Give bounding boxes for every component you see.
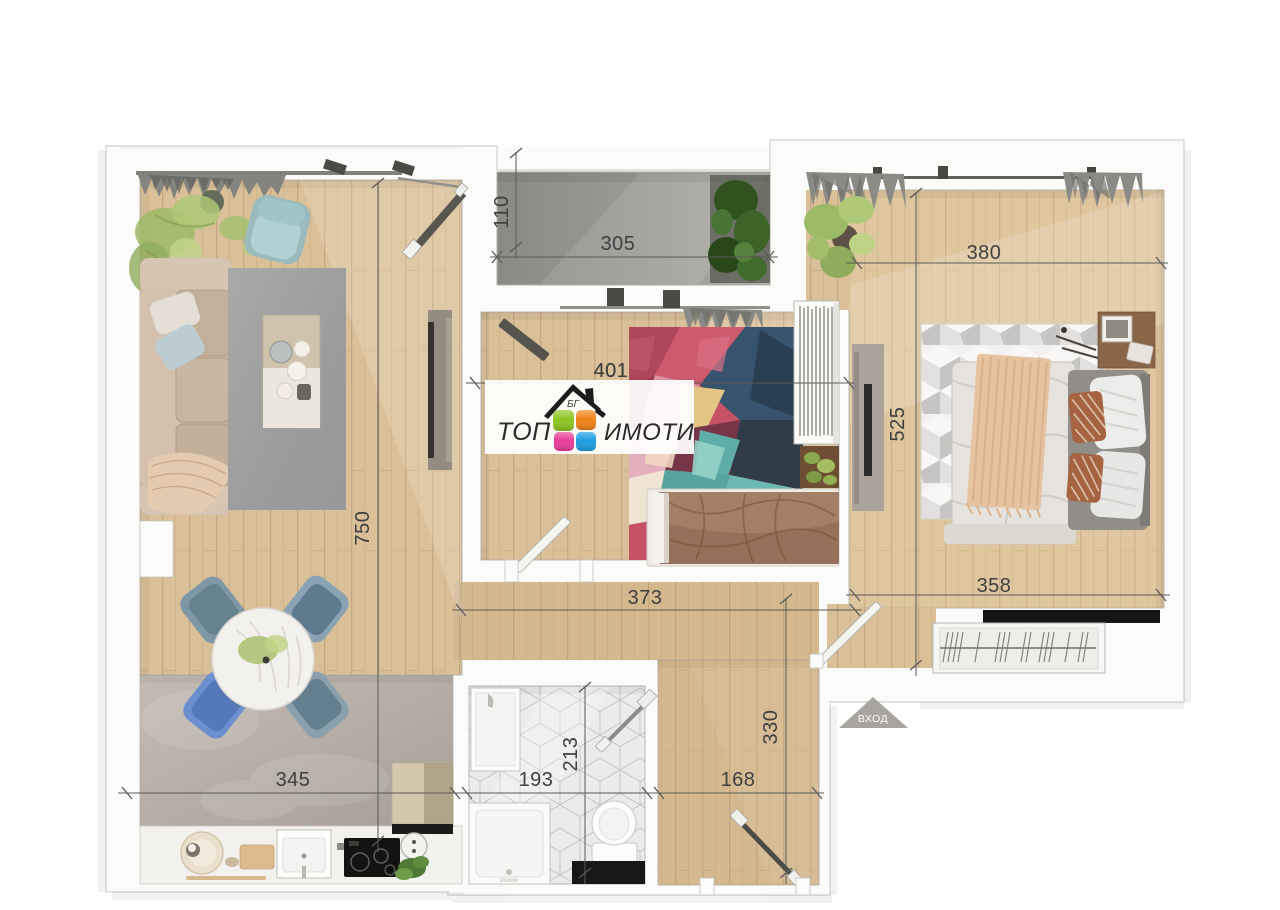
svg-text:373: 373 bbox=[628, 587, 663, 609]
svg-text:330: 330 bbox=[760, 710, 782, 745]
svg-text:110: 110 bbox=[491, 195, 513, 228]
svg-text:358: 358 bbox=[977, 575, 1012, 597]
svg-text:ВХОД: ВХОД bbox=[858, 713, 888, 725]
svg-text:213: 213 bbox=[560, 737, 582, 772]
svg-text:168: 168 bbox=[721, 769, 756, 791]
svg-text:БГ: БГ bbox=[567, 399, 581, 410]
svg-text:750: 750 bbox=[352, 511, 374, 546]
svg-text:ТОП: ТОП bbox=[497, 418, 551, 446]
svg-text:401: 401 bbox=[594, 360, 629, 382]
svg-text:ИМОТИ: ИМОТИ bbox=[604, 419, 694, 446]
svg-text:345: 345 bbox=[276, 769, 311, 791]
svg-text:193: 193 bbox=[519, 769, 554, 791]
svg-text:525: 525 bbox=[887, 407, 909, 442]
svg-text:380: 380 bbox=[967, 242, 1002, 264]
svg-text:305: 305 bbox=[601, 233, 636, 255]
svg-text:shower: shower bbox=[499, 878, 518, 884]
